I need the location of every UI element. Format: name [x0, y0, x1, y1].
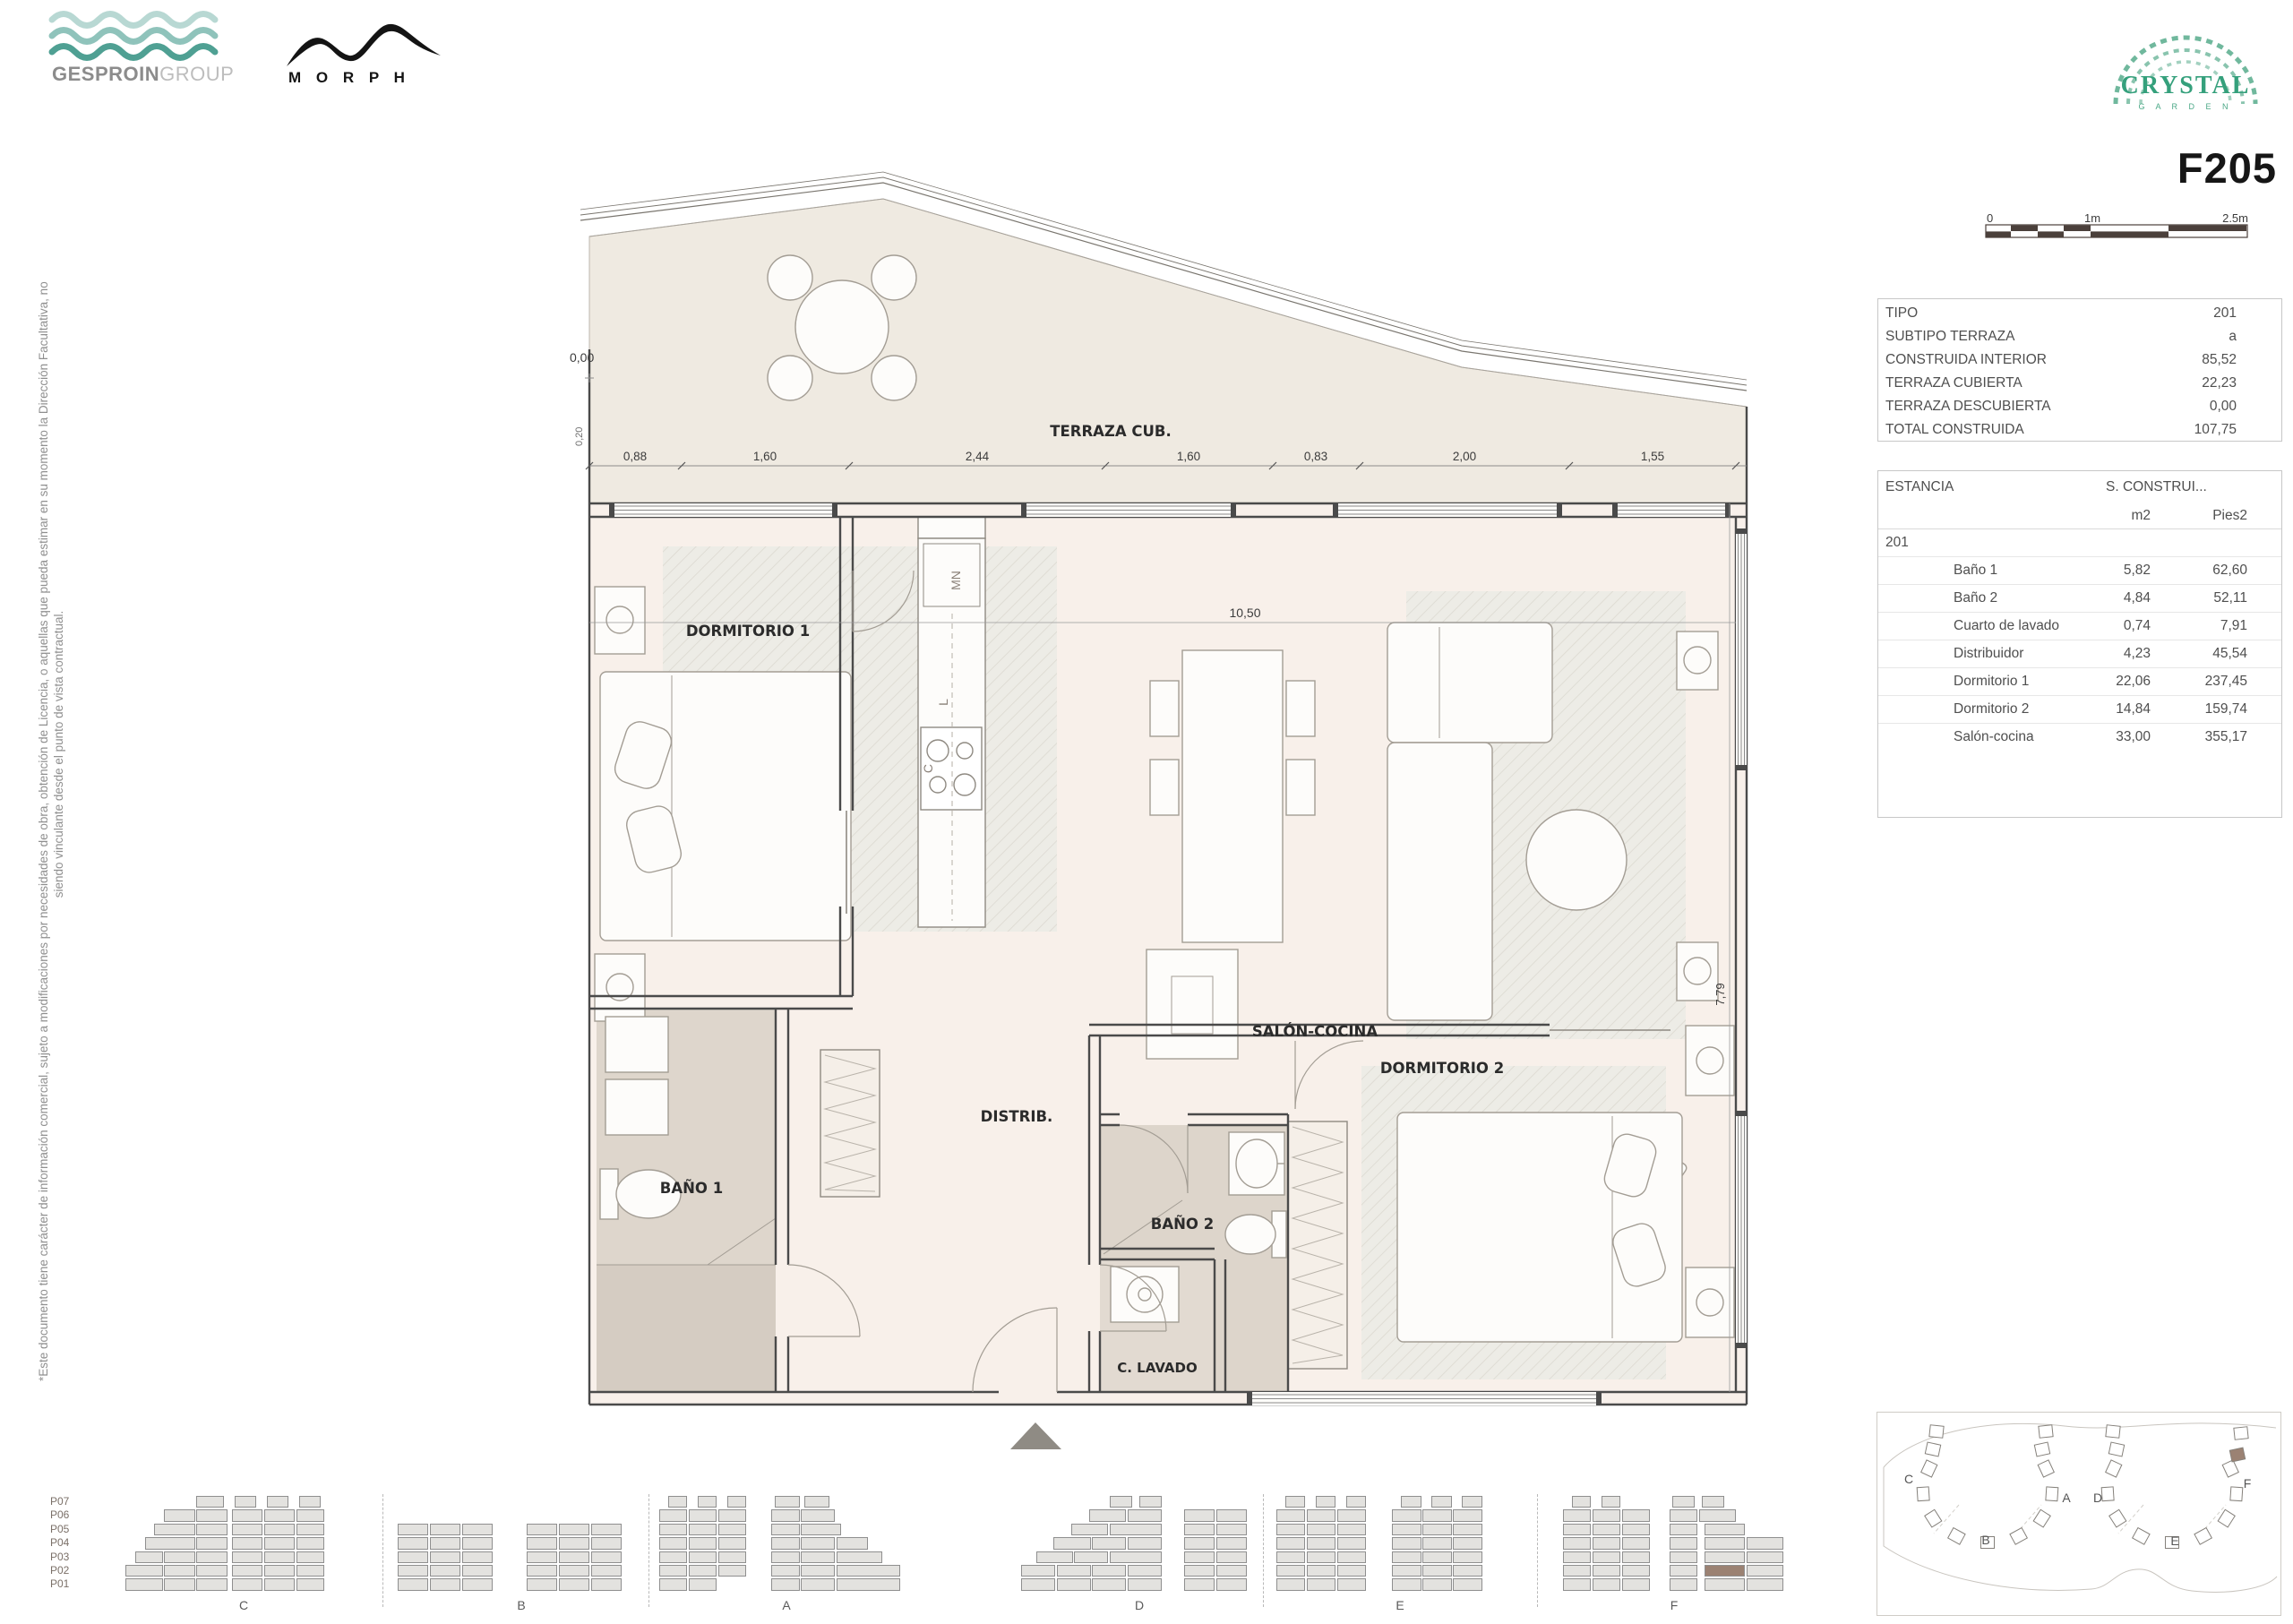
elevation-block [1074, 1551, 1108, 1563]
rooms-table-body: Baño 15,8262,60Baño 24,8452,11Cuarto de … [1878, 556, 2281, 751]
elevation-block [1593, 1524, 1620, 1535]
elevation-block [1392, 1524, 1421, 1535]
elevation-block [1071, 1524, 1108, 1535]
site-plan: CBADEF [1876, 1412, 2281, 1616]
elevation-block [1216, 1551, 1248, 1563]
elevation-block [125, 1565, 163, 1577]
site-unit [1925, 1442, 1940, 1456]
elevation-block [1307, 1565, 1335, 1577]
rooms-table-header-construida: S. CONSTRUI... [2106, 479, 2281, 495]
elevation-block [1276, 1578, 1305, 1590]
elevation-block [559, 1537, 589, 1549]
room-row-pies2: 45,54 [2151, 646, 2281, 662]
elevation-block [1346, 1496, 1366, 1508]
elevation-block [196, 1565, 227, 1577]
disclaimer-line-1: *Este documento tiene carácter de inform… [36, 127, 51, 1381]
dining-table [1182, 650, 1283, 942]
elevation-block [659, 1578, 687, 1590]
room-row-pies2: 159,74 [2151, 701, 2281, 717]
elevation-block [196, 1524, 227, 1535]
elevation-block [1670, 1565, 1697, 1577]
room-row: Dormitorio 214,84159,74 [1878, 695, 2281, 723]
elevation-block [1670, 1509, 1697, 1521]
elevation-block [125, 1578, 163, 1590]
room-row-name: Cuarto de lavado [1878, 618, 2070, 634]
washing-machine [1111, 1267, 1179, 1322]
morph-logo: M O R P H [279, 4, 450, 90]
elevation-block [1462, 1496, 1481, 1508]
elevation-block [718, 1524, 746, 1535]
wave-icon [52, 14, 215, 58]
elevation-block [1705, 1537, 1745, 1549]
elevation-block [591, 1578, 622, 1590]
room-row-m2: 4,23 [2070, 646, 2151, 662]
elevation-block [1057, 1578, 1091, 1590]
room-row: Distribuidor4,2345,54 [1878, 640, 2281, 667]
elevation-block [559, 1578, 589, 1590]
room-row: Baño 24,8452,11 [1878, 584, 2281, 612]
elevation-block [801, 1565, 835, 1577]
elevation-block [196, 1496, 224, 1508]
site-block-label: F [2244, 1476, 2252, 1491]
elevation-block [1602, 1496, 1621, 1508]
elevation-block [668, 1496, 688, 1508]
disclaimer-line-2: siendo vinculante desde el punto de vist… [51, 127, 66, 1381]
elevation-block [801, 1578, 835, 1590]
elevation-block [1422, 1551, 1451, 1563]
elevation-block [689, 1578, 717, 1590]
elevation-block [1128, 1509, 1162, 1521]
elevation-block [1572, 1496, 1592, 1508]
elevation-group-label: A [769, 1598, 804, 1612]
elevation-block [1184, 1551, 1215, 1563]
sofa-seat [1387, 743, 1492, 1020]
site-unit [2039, 1425, 2053, 1438]
room-label-terraza: TERRAZA CUB. [1050, 423, 1172, 440]
dim-segment-label: 0,88 [623, 450, 647, 463]
elevation-block [1139, 1496, 1162, 1508]
elevation-block [462, 1578, 493, 1590]
elevation-block [1747, 1565, 1783, 1577]
elevation-block [1110, 1524, 1162, 1535]
elevation-block [559, 1524, 589, 1535]
elevation-block [196, 1509, 227, 1521]
site-block-label: E [2170, 1534, 2178, 1548]
elevation-block [1563, 1565, 1591, 1577]
elevation-block [1453, 1537, 1481, 1549]
summary-row: SUBTIPO TERRAZAa [1878, 325, 2281, 348]
elevation-block [1670, 1524, 1697, 1535]
site-block-label: C [1904, 1472, 1913, 1486]
elevation-block [771, 1565, 799, 1577]
elevation-block [837, 1537, 868, 1549]
elevation-block [1453, 1578, 1481, 1590]
elevation-block [1110, 1496, 1132, 1508]
elevation-block [527, 1578, 557, 1590]
crystal-wordmark: CRYSTAL [2121, 72, 2251, 99]
rooms-table-group: 201 [1878, 529, 2281, 556]
elevation-block [1216, 1537, 1248, 1549]
elevation-block [1307, 1524, 1335, 1535]
summary-row-value: a [2102, 329, 2281, 345]
elevation-block [232, 1524, 262, 1535]
summary-row-label: CONSTRUIDA INTERIOR [1878, 352, 2102, 368]
elevation-block [1216, 1509, 1248, 1521]
room-row-pies2: 237,45 [2151, 674, 2281, 690]
elevation-block [1422, 1537, 1451, 1549]
elevation-block [689, 1537, 717, 1549]
elevation-block [1092, 1578, 1126, 1590]
coffee-table [1526, 810, 1627, 910]
elevation-block [527, 1565, 557, 1577]
floor-label: P06 [50, 1508, 90, 1521]
elevation-block [1563, 1537, 1591, 1549]
elevation-group-label: F [1656, 1598, 1692, 1612]
building-elevations: P07P06P05P04P03P02P01CBADEF [36, 1494, 1809, 1624]
elevation-block [1593, 1578, 1620, 1590]
elevation-block [1021, 1578, 1055, 1590]
elevation-block [1593, 1537, 1620, 1549]
elevation-block [1089, 1509, 1126, 1521]
dim-segment-label: 0,83 [1304, 450, 1327, 463]
elevation-block [462, 1537, 493, 1549]
elevation-block [1337, 1524, 1366, 1535]
elevation-block [1092, 1537, 1126, 1549]
elevation-block [837, 1578, 900, 1590]
site-unit [1917, 1487, 1929, 1501]
dim-sill: 0,20 [574, 427, 585, 446]
elevation-block [527, 1551, 557, 1563]
floor-label: P07 [50, 1495, 90, 1508]
elevation-block [837, 1565, 900, 1577]
elevation-block [591, 1551, 622, 1563]
elevation-block [1622, 1524, 1650, 1535]
elevation-block [1392, 1578, 1421, 1590]
elevation-block [430, 1578, 460, 1590]
summary-table-body: TIPO201SUBTIPO TERRAZAaCONSTRUIDA INTERI… [1878, 302, 2281, 442]
elevation-block [659, 1551, 687, 1563]
dim-total-height: 7,79 [1713, 983, 1727, 1005]
legal-disclaimer: *Este documento tiene carácter de inform… [36, 127, 72, 1381]
elevation-block [727, 1496, 747, 1508]
elevation-block [1422, 1565, 1451, 1577]
elevation-block [1392, 1551, 1421, 1563]
elevation-block [264, 1537, 295, 1549]
elevation-block [1705, 1578, 1745, 1590]
elevation-block [1670, 1537, 1697, 1549]
elevation-group-label: C [226, 1598, 262, 1612]
bathroom1-shower-floor [597, 1265, 776, 1392]
elevation-block [1276, 1551, 1305, 1563]
summary-row-label: TERRAZA DESCUBIERTA [1878, 399, 2102, 415]
site-unit [2046, 1487, 2058, 1501]
elevation-block [689, 1524, 717, 1535]
scale-bar-segments [1986, 225, 2247, 237]
sofa-chaise [1387, 623, 1552, 743]
site-unit [2108, 1442, 2124, 1456]
elevation-block [264, 1578, 295, 1590]
elevation-block [232, 1565, 262, 1577]
kitchen-code-l: L [936, 699, 950, 706]
summary-row-label: SUBTIPO TERRAZA [1878, 329, 2102, 345]
elevation-block [801, 1537, 835, 1549]
elevation-block [1563, 1509, 1591, 1521]
elevation-block [1276, 1537, 1305, 1549]
elevation-block [296, 1551, 324, 1563]
elevation-block [718, 1551, 746, 1563]
elevation-block [135, 1551, 163, 1563]
elevation-block [775, 1496, 800, 1508]
elevation-block [296, 1537, 324, 1549]
elevation-block [1670, 1551, 1697, 1563]
elevation-block [398, 1537, 428, 1549]
elevation-block [559, 1551, 589, 1563]
elevation-block [1036, 1551, 1073, 1563]
elevation-block [718, 1537, 746, 1549]
elevation-separator [382, 1494, 383, 1607]
unit-code: F205 [2008, 143, 2277, 193]
elevation-block [398, 1565, 428, 1577]
elevation-block [1593, 1551, 1620, 1563]
room-label-distrib: DISTRIB. [981, 1108, 1053, 1125]
room-row-name: Baño 1 [1878, 563, 2070, 579]
elevation-block [1563, 1578, 1591, 1590]
elevation-block [1392, 1565, 1421, 1577]
elevation-block [1053, 1537, 1090, 1549]
elevation-block [299, 1496, 321, 1508]
room-row: Salón-cocina33,00355,17 [1878, 723, 2281, 751]
site-unit-highlight [2229, 1448, 2245, 1462]
room-row: Dormitorio 122,06237,45 [1878, 667, 2281, 695]
site-unit [2106, 1425, 2120, 1438]
elevation-block [145, 1537, 195, 1549]
elevation-block [1184, 1537, 1215, 1549]
floor-label: P04 [50, 1536, 90, 1549]
elevation-block [164, 1551, 194, 1563]
elevation-block [801, 1551, 835, 1563]
elevation-block [1337, 1578, 1366, 1590]
elevation-block [1128, 1537, 1162, 1549]
elevation-block [1622, 1551, 1650, 1563]
elevation-block [296, 1524, 324, 1535]
elevation-block-highlight [1705, 1565, 1745, 1577]
kitchen-code-c: C [921, 764, 935, 773]
elevation-block [659, 1537, 687, 1549]
elevation-block [267, 1496, 288, 1508]
elevation-group-label: E [1382, 1598, 1418, 1612]
elevation-block [1216, 1524, 1248, 1535]
scale-2-5m: 2.5m [2222, 213, 2248, 225]
elevation-block [1128, 1565, 1162, 1577]
elevation-block [1337, 1509, 1366, 1521]
entrance-arrow-icon [1010, 1422, 1061, 1449]
site-block-label: B [1981, 1533, 1989, 1547]
gesproin-logo: GESPROINGROUP [39, 5, 263, 91]
elevation-block [296, 1565, 324, 1577]
elevation-separator [648, 1494, 649, 1607]
room-row-name: Salón-cocina [1878, 729, 2070, 745]
elevation-block [264, 1551, 295, 1563]
elevation-block [430, 1565, 460, 1577]
elevation-block [1622, 1509, 1650, 1521]
elevation-block [232, 1537, 262, 1549]
room-row-name: Distribuidor [1878, 646, 2070, 662]
elevation-block [264, 1509, 295, 1521]
gesproin-wordmark: GESPROINGROUP [52, 63, 234, 85]
summary-row-value: 85,52 [2102, 352, 2281, 368]
elevation-block [718, 1565, 746, 1577]
room-label-lavado: C. LAVADO [1117, 1360, 1197, 1376]
elevation-block [1392, 1537, 1421, 1549]
elevation-block [1092, 1565, 1126, 1577]
rooms-table: ESTANCIA S. CONSTRUI... m2 Pies2 201 Bañ… [1877, 470, 2282, 818]
room-label-salon: SALÓN-COCINA [1252, 1023, 1378, 1040]
rooms-table-unit-m2: m2 [2070, 508, 2151, 524]
site-unit [2101, 1487, 2114, 1501]
elevation-block [1401, 1496, 1421, 1508]
room-label-bano2: BAÑO 2 [1151, 1216, 1214, 1233]
elevation-group-label: B [503, 1598, 539, 1612]
summary-row: TOTAL CONSTRUIDA107,75 [1878, 418, 2281, 442]
dim-segment-label: 1,60 [1177, 450, 1200, 463]
elevation-block [1316, 1496, 1335, 1508]
site-block-label: D [2093, 1491, 2102, 1505]
site-unit [2034, 1442, 2049, 1456]
floor-label: P03 [50, 1551, 90, 1563]
elevation-block [1747, 1578, 1783, 1590]
elevation-block [164, 1565, 194, 1577]
elevation-block [196, 1551, 227, 1563]
summary-row-value: 22,23 [2102, 375, 2281, 391]
elevation-block [232, 1551, 262, 1563]
elevation-block [1337, 1551, 1366, 1563]
elevation-block [771, 1551, 799, 1563]
elevation-block [1184, 1578, 1215, 1590]
floor-label: P02 [50, 1564, 90, 1577]
elevation-block [527, 1537, 557, 1549]
dim-segment-label: 1,55 [1641, 450, 1664, 463]
elevation-block [1216, 1565, 1248, 1577]
dim-segment-label: 1,60 [753, 450, 777, 463]
summary-row-value: 107,75 [2102, 422, 2281, 438]
elevation-block [264, 1565, 295, 1577]
elevation-block [398, 1524, 428, 1535]
elevation-block [1021, 1565, 1055, 1577]
elevation-block [1453, 1565, 1481, 1577]
elevation-block [1337, 1537, 1366, 1549]
elevation-block [196, 1578, 227, 1590]
room-row-m2: 4,84 [2070, 590, 2151, 606]
room-row-name: Dormitorio 1 [1878, 674, 2070, 690]
elevation-block [1307, 1551, 1335, 1563]
elevation-block [771, 1524, 799, 1535]
elevation-block [1276, 1509, 1305, 1521]
summary-row-value: 0,00 [2102, 399, 2281, 415]
elevation-block [1702, 1496, 1724, 1508]
room-row-m2: 14,84 [2070, 701, 2151, 717]
elevation-block [1453, 1509, 1481, 1521]
elevation-separator [1537, 1494, 1538, 1607]
site-block-label: A [2062, 1491, 2071, 1505]
elevation-block [659, 1565, 687, 1577]
room-row-m2: 33,00 [2070, 729, 2151, 745]
elevation-block [659, 1524, 687, 1535]
elevation-block [462, 1551, 493, 1563]
elevation-block [1672, 1496, 1695, 1508]
room-row-pies2: 52,11 [2151, 590, 2281, 606]
room-row-pies2: 7,91 [2151, 618, 2281, 634]
elevation-block [154, 1524, 194, 1535]
elevation-block [1057, 1565, 1091, 1577]
elevation-block [264, 1524, 295, 1535]
elevation-block [771, 1578, 799, 1590]
summary-row: CONSTRUIDA INTERIOR85,52 [1878, 348, 2281, 372]
elevation-block [1431, 1496, 1451, 1508]
summary-row-value: 201 [2102, 305, 2281, 322]
elevation-block [771, 1509, 799, 1521]
elevation-block [430, 1524, 460, 1535]
elevation-block [398, 1551, 428, 1563]
elevation-block [591, 1565, 622, 1577]
elevation-block [1593, 1509, 1620, 1521]
mountain-icon [287, 24, 441, 66]
elevation-block [591, 1524, 622, 1535]
site-unit [1929, 1425, 1944, 1438]
room-label-dorm1: DORMITORIO 1 [686, 623, 810, 640]
elevation-block [1705, 1524, 1745, 1535]
elevation-block [462, 1524, 493, 1535]
summary-row: TIPO201 [1878, 302, 2281, 325]
elevation-block [771, 1537, 799, 1549]
rooms-table-header-estancia: ESTANCIA [1878, 479, 2106, 495]
elevation-separator [1263, 1494, 1264, 1607]
room-row: Baño 15,8262,60 [1878, 556, 2281, 584]
room-row-pies2: 355,17 [2151, 729, 2281, 745]
scale-1m: 1m [2084, 213, 2100, 225]
garden-wordmark: G A R D E N [2138, 102, 2232, 111]
site-unit [2234, 1427, 2248, 1439]
elevation-block [1747, 1537, 1783, 1549]
elevation-block [801, 1509, 835, 1521]
room-row-m2: 5,82 [2070, 563, 2151, 579]
elevation-block [1307, 1578, 1335, 1590]
elevation-block [718, 1509, 746, 1521]
bed-1 [600, 672, 851, 941]
crystal-garden-logo: CRYSTAL G A R D E N [2103, 4, 2268, 127]
elevation-block [527, 1524, 557, 1535]
elevation-block [1422, 1509, 1451, 1521]
room-row: Cuarto de lavado0,747,91 [1878, 612, 2281, 640]
elevation-block [801, 1524, 841, 1535]
elevation-block [296, 1578, 324, 1590]
rooms-table-unit-pies2: Pies2 [2151, 508, 2281, 524]
elevation-block [698, 1496, 717, 1508]
elevation-block [1705, 1551, 1745, 1563]
elevation-block [462, 1565, 493, 1577]
elevation-block [559, 1565, 589, 1577]
summary-row-label: TERRAZA CUBIERTA [1878, 375, 2102, 391]
elevation-block [1128, 1578, 1162, 1590]
summary-row: TERRAZA DESCUBIERTA0,00 [1878, 395, 2281, 418]
summary-row-label: TIPO [1878, 305, 2102, 322]
room-row-name: Baño 2 [1878, 590, 2070, 606]
elevation-block [430, 1551, 460, 1563]
elevation-block [398, 1578, 428, 1590]
dim-total-width: 10,50 [1229, 606, 1260, 620]
kitchen-code-mn: MN [949, 571, 963, 590]
elevation-block [1670, 1578, 1697, 1590]
elevation-block [804, 1496, 829, 1508]
